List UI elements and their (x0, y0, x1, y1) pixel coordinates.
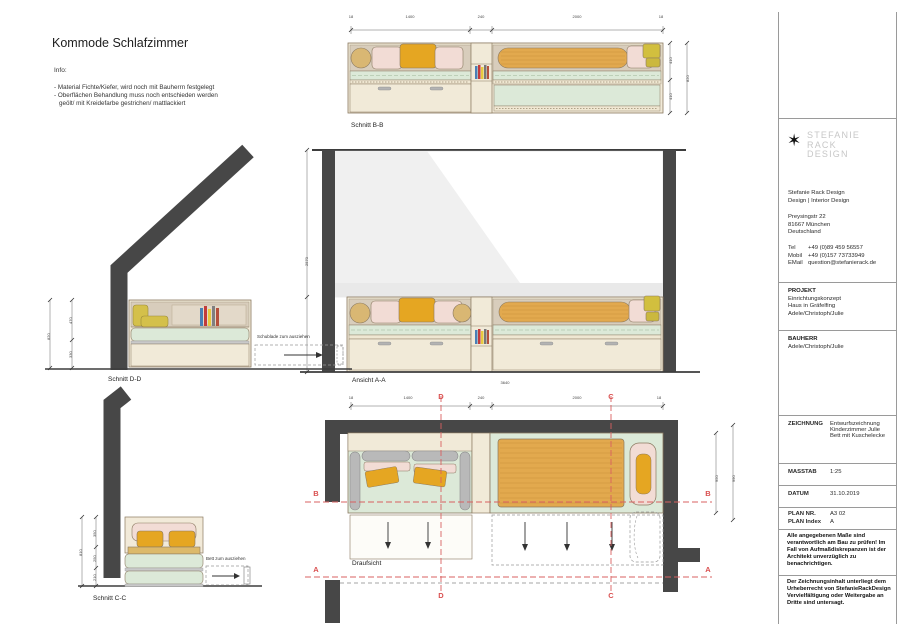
drawer-front (349, 339, 471, 370)
label-schnitt-cc: Schnitt C-C (93, 595, 126, 602)
divider (779, 330, 896, 331)
drawer-handle (605, 342, 618, 345)
pink-pillow (371, 301, 401, 323)
sloped-roof-wall (112, 393, 126, 578)
dim-label: 250 (92, 555, 97, 562)
book (487, 330, 489, 344)
divider (779, 463, 896, 464)
zeichnung-section: ZEICHNUNG Entwurfszeichnung Kinderzimmer… (788, 421, 885, 439)
dim-label: 820 (685, 75, 690, 82)
bed-right-section (493, 44, 661, 111)
dim-label: 820 (46, 333, 51, 340)
info-line: - Material Fichte/Kiefer, wird noch mit … (54, 84, 214, 91)
divider (779, 529, 896, 530)
books-on-shelf (200, 306, 219, 326)
section-letter-b-left: B (313, 490, 318, 498)
section-letter-c-top: C (608, 393, 613, 401)
dim-label: 330 (68, 351, 73, 358)
book (475, 330, 478, 344)
book (204, 306, 207, 326)
mattress-upper (125, 554, 203, 568)
book (478, 329, 481, 344)
drawer-front (350, 84, 471, 112)
divider (779, 575, 896, 576)
bauherr-section: BAUHERR Adele/Christoph/Julie (788, 336, 844, 351)
yellow-cushion (141, 316, 168, 327)
drawer-handle (430, 342, 443, 345)
datum-row: DATUM31.10.2019 (788, 491, 859, 497)
divider (779, 118, 896, 119)
orange-cushion (399, 298, 435, 322)
wall-top (325, 420, 678, 434)
book (484, 65, 487, 79)
dim-label: 410 (668, 57, 673, 64)
annotation-drawer: Schublade zum ausziehen (257, 334, 310, 339)
title-block: ✶ Stefanie Rack Design Stefanie Rack Des… (778, 12, 897, 624)
trundle-mattress (494, 85, 660, 106)
orange-cushion (137, 531, 163, 547)
wall-left-stub (325, 580, 340, 623)
page-title: Kommode Schlafzimmer (52, 36, 188, 50)
section-letter-c-bottom: C (608, 592, 613, 600)
yellow-cushion (644, 296, 660, 311)
middle-shelf (471, 297, 492, 372)
drawer-front (493, 339, 661, 370)
section-letter-a-right: A (705, 566, 710, 574)
annotation-bed: Bett zum ausziehen (206, 556, 246, 561)
pulled-bed-dashed (630, 512, 660, 562)
dimension-line (351, 26, 663, 34)
book (216, 308, 219, 326)
dimension-line (351, 402, 663, 410)
draufsicht-view (305, 396, 735, 623)
book (478, 65, 481, 79)
middle-shelf (471, 43, 492, 113)
section-letter-d-bottom: D (438, 592, 443, 600)
pillow-center (636, 454, 651, 494)
ansicht-aa-view (300, 148, 700, 374)
book (475, 66, 478, 79)
dim-label: 240 (478, 395, 485, 400)
dimension-line (716, 425, 733, 520)
head-shelf (348, 433, 472, 451)
wall-right (663, 150, 676, 372)
section-letter-d-top: D (438, 393, 443, 401)
book (212, 306, 215, 326)
label-ansicht-aa: Ansicht A-A (352, 377, 386, 384)
wall-notch (678, 548, 700, 562)
book (484, 329, 487, 344)
gray-bolster (460, 452, 470, 510)
dim-label: 18 (349, 395, 353, 400)
divider (779, 282, 896, 283)
schnitt-bb-view (348, 26, 689, 115)
mattress (131, 328, 249, 341)
note-1: Alle angegebenen Maße sind verantwortlic… (787, 533, 891, 568)
drawer-front (131, 344, 249, 366)
drawer-handle (430, 87, 443, 90)
bolster-pillow (350, 303, 370, 323)
pullout-bed-dashed (206, 566, 248, 585)
label-schnitt-bb: Schnitt B-B (351, 122, 384, 129)
bed-plan (490, 433, 663, 513)
dim-label: 2570 (304, 257, 309, 266)
logo-star-icon: ✶ (787, 132, 801, 149)
info-heading: Info: (54, 67, 67, 74)
wall-right (663, 420, 678, 592)
wall-left (325, 420, 340, 502)
dim-label: 2000 (573, 14, 582, 19)
gray-bolster (412, 451, 458, 461)
pink-pillow (372, 47, 402, 69)
label-draufsicht: Draufsicht (352, 560, 381, 567)
book (481, 67, 484, 79)
gray-bolster (362, 451, 410, 461)
drawing-sheet: Kommode Schlafzimmer Info: - Material Fi… (0, 0, 900, 636)
yellow-cushion (646, 58, 660, 67)
orange-cushion (400, 44, 436, 68)
dim-label: 18 (657, 395, 661, 400)
studio-address: Preysingstr 22 81667 München Deutschland (788, 214, 830, 237)
masstab-row: MASSTAB1:25 (788, 469, 841, 475)
dim-label: 350 (92, 530, 97, 537)
logo-text: Stefanie Rack Design (807, 131, 860, 160)
plan-nr-row: PLAN NR.A3 02 (788, 511, 845, 517)
drawer-handle (378, 87, 391, 90)
studio-name: Stefanie Rack Design Design | Interior D… (788, 190, 849, 205)
dim-label: 2000 (573, 395, 582, 400)
dim-label: 18 (349, 14, 353, 19)
divider (779, 507, 896, 508)
dim-label: 810 (78, 549, 83, 556)
note-2: Der Zeichnungsinhalt unterliegt dem Urhe… (787, 579, 891, 607)
drawer-handle (540, 342, 553, 345)
dim-label: 1400 (406, 14, 415, 19)
gray-bolster (350, 452, 360, 510)
studio-contact: Tel+49 (0)89 459 56557 Mobil+49 (0)157 7… (788, 245, 876, 268)
wall-left (322, 150, 335, 372)
dim-label: 18 (659, 14, 663, 19)
yellow-cushion (643, 44, 660, 58)
dim-label: 950 (714, 475, 719, 482)
headboard-shelf (128, 547, 200, 554)
dim-label: 210 (92, 574, 97, 581)
kuschelecke-plan (348, 433, 472, 513)
divider (779, 485, 896, 486)
dim-label: 1400 (404, 395, 413, 400)
book (487, 66, 489, 79)
dim-label: 470 (68, 317, 73, 324)
pink-pillow (435, 47, 463, 69)
label-schnitt-dd: Schnitt D-D (108, 376, 141, 383)
drawer-handle (378, 342, 391, 345)
book (481, 331, 484, 344)
mattress (350, 71, 471, 80)
long-bolster (499, 302, 631, 322)
plan-index-row: PLAN IndexA (788, 519, 834, 525)
drawer-zone-plan (350, 512, 663, 565)
divider-shelf-plan (472, 433, 490, 513)
divider (779, 415, 896, 416)
book (208, 309, 211, 326)
book (200, 308, 203, 326)
dim-label: 3640 (501, 380, 510, 385)
info-line: geölt/ mit Kreidefarbe gestrichen/ mattl… (59, 100, 185, 107)
mattress-lower (125, 571, 203, 584)
dim-label: 410 (668, 93, 673, 100)
knee-wall-band (335, 283, 663, 297)
bed-right-section (493, 296, 661, 370)
section-letter-a-left: A (313, 566, 318, 574)
bed-left-section (349, 298, 471, 370)
bolster-pillow (351, 48, 371, 68)
projekt-section: PROJEKT Einrichtungskonzept Haus in Gräf… (788, 288, 844, 318)
bolster-pillow (453, 304, 471, 322)
mattress (349, 325, 471, 335)
info-line: - Oberflächen Behandlung muss noch entsc… (54, 92, 218, 99)
dim-label: 990 (731, 475, 736, 482)
yellow-cushion (646, 312, 659, 321)
bed-left-section (350, 44, 471, 112)
long-bolster (498, 48, 628, 68)
orange-cushion (169, 531, 195, 547)
dim-label: 240 (478, 14, 485, 19)
section-letter-b-right: B (705, 490, 710, 498)
